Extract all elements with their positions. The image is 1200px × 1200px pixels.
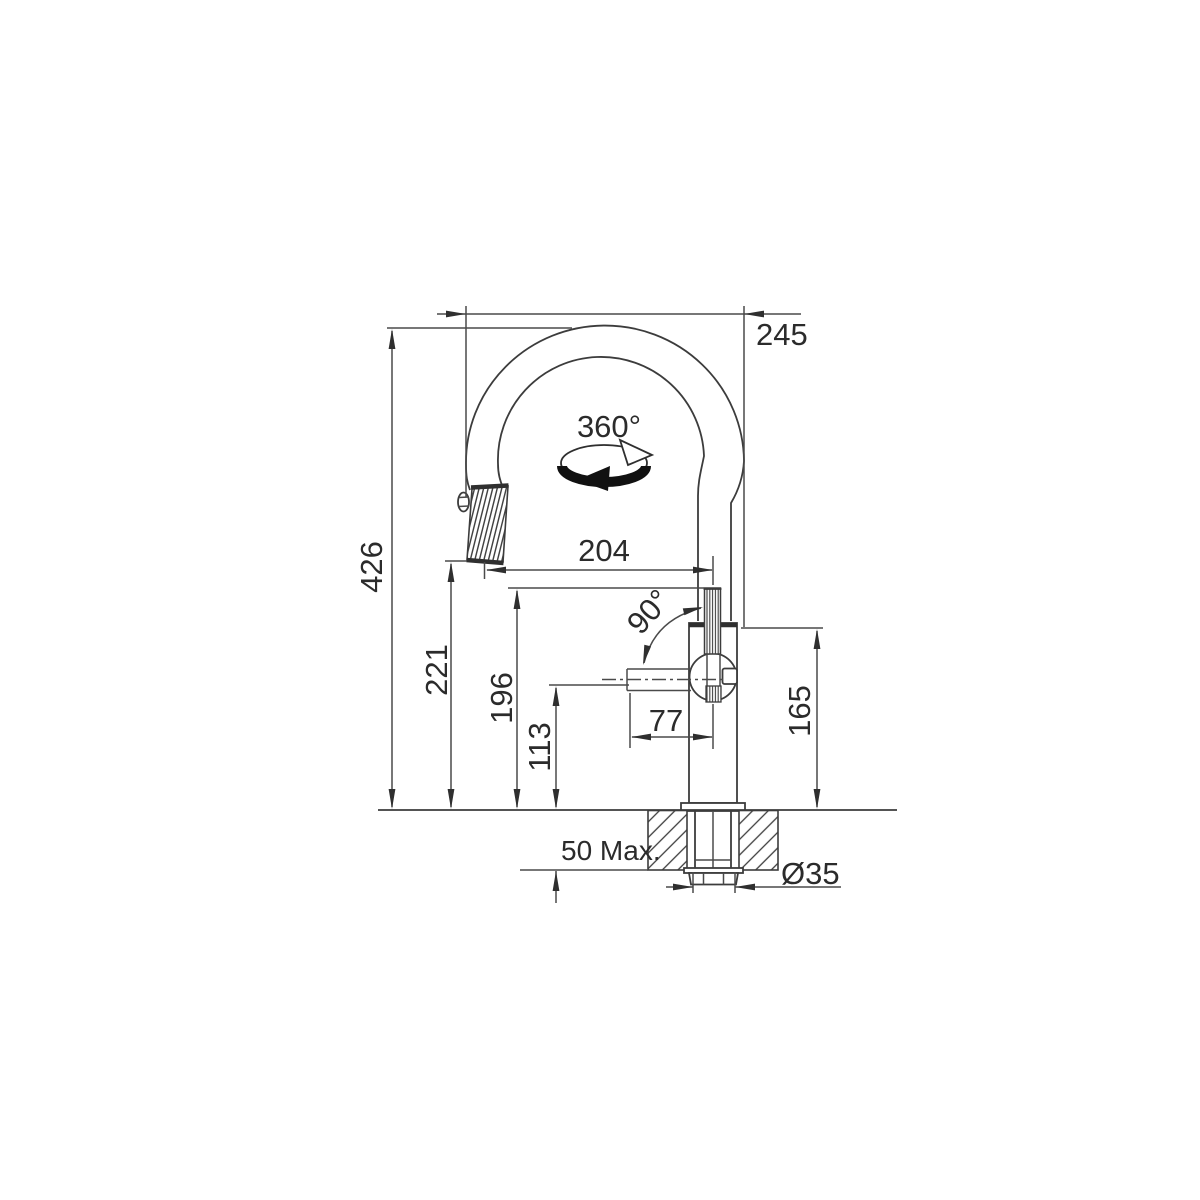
mounting-nut	[689, 873, 738, 885]
label-spout-swivel-angle: 360°	[577, 409, 641, 444]
dim-spout-outlet-height: 221	[419, 561, 467, 809]
label-lever-swing-angle: 90°	[620, 583, 677, 641]
label-spout-outlet-height: 221	[419, 644, 454, 696]
label-lever-height: 113	[522, 722, 557, 771]
spray-button	[458, 493, 469, 512]
label-lever-reach: 77	[649, 703, 683, 738]
label-overall-projection: 245	[756, 317, 808, 352]
label-max-deck-thickness: 50 Max.	[561, 835, 661, 866]
dim-lever-height: 113	[522, 685, 629, 809]
dim-body-height: 165	[741, 628, 823, 809]
dim-max-deck-thickness: 50 Max.	[520, 835, 661, 903]
threaded-shank	[695, 811, 731, 869]
dim-spout-reach: 204	[485, 533, 714, 585]
handle-lever	[705, 588, 721, 654]
spray-head	[458, 486, 509, 564]
dim-overall-projection: 245	[437, 306, 808, 627]
rotation-arrow-icon	[561, 440, 652, 491]
label-total-height: 426	[354, 541, 389, 593]
faucet-technical-drawing: 426 221 196 113 77 2	[0, 0, 1200, 1200]
cartridge-tab	[723, 669, 738, 685]
spout-inner-edge	[498, 357, 704, 621]
label-body-height: 165	[782, 685, 817, 737]
label-mounting-hole-diameter: Ø35	[781, 856, 840, 891]
label-spout-reach: 204	[578, 533, 630, 568]
handle-stem-ribs	[706, 686, 721, 702]
label-handle-top-height: 196	[484, 672, 519, 724]
drawing-canvas: 426 221 196 113 77 2	[0, 0, 1200, 1200]
